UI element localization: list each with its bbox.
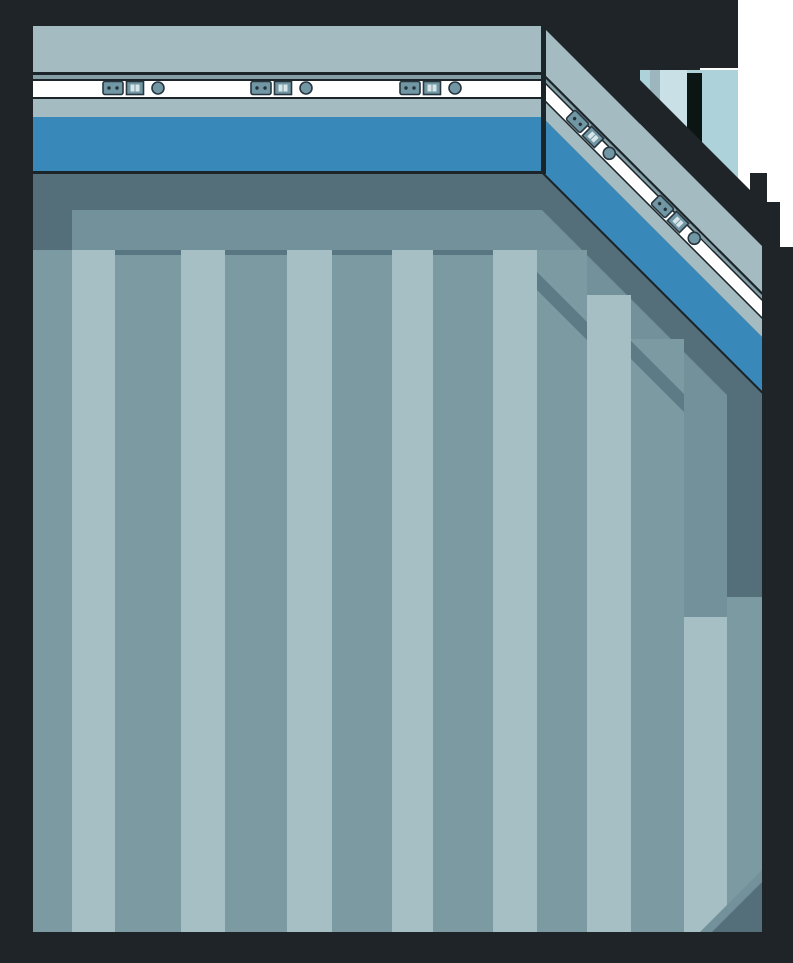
outlet-panel-group — [251, 82, 312, 95]
frame-right — [762, 247, 793, 963]
floor-stripe — [587, 295, 631, 932]
room-scene — [0, 0, 793, 963]
wall-upper-band — [33, 26, 542, 72]
floor-stripe-edge — [115, 250, 181, 255]
floor-stripe — [537, 250, 587, 932]
floor-stripe-edge — [225, 250, 287, 255]
floor-stripe — [115, 250, 181, 932]
outlet-panel-group — [103, 82, 164, 95]
floor-stripe — [181, 250, 225, 932]
wall-trim-line-3 — [33, 97, 542, 99]
wall-trim-strip — [33, 75, 542, 79]
floor-stripe-edge — [332, 250, 392, 255]
wall-corner-fold-line — [541, 26, 546, 174]
frame-step-large — [762, 202, 780, 247]
floor-stripe — [225, 250, 287, 932]
floor-stripe — [332, 250, 392, 932]
floor-stripe — [631, 339, 684, 932]
floor-stripe — [33, 250, 72, 932]
floor-stripe — [433, 250, 493, 932]
wall-trim-line-2 — [33, 79, 542, 81]
outlet-panel-group — [400, 82, 461, 95]
floor-stripe-edge — [433, 250, 493, 255]
floor-stripe — [493, 250, 537, 932]
floor-stripe — [72, 250, 115, 932]
floor-stripe — [392, 250, 433, 932]
floor-stripe — [287, 250, 332, 932]
floor-stripe — [684, 617, 727, 932]
wall-trim-line-1 — [33, 72, 542, 75]
wall-blue-band — [33, 117, 542, 171]
wall-lower-gray-band — [33, 99, 542, 117]
wall-base-line — [33, 171, 542, 174]
frame-step-small — [750, 173, 767, 203]
room-scene-canvas — [0, 0, 793, 963]
